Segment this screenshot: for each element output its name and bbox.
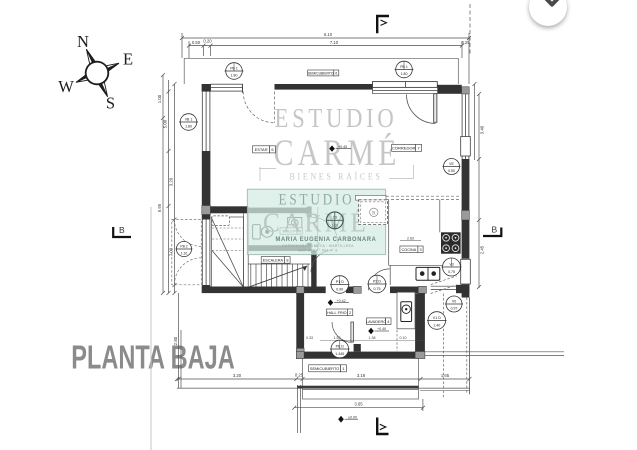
- svg-text:E: E: [123, 50, 133, 69]
- svg-text:HALL FRIO: HALL FRIO: [327, 311, 347, 315]
- svg-text:0.10: 0.10: [400, 336, 407, 340]
- svg-text:PB 1: PB 1: [230, 66, 238, 70]
- svg-text:1.00: 1.00: [157, 94, 162, 103]
- svg-text:0.75: 0.75: [448, 270, 455, 274]
- svg-text:PB 2: PB 2: [180, 244, 187, 248]
- svg-text:1.80: 1.80: [185, 125, 192, 129]
- svg-text:1.40: 1.40: [433, 323, 440, 327]
- svg-text:V0: V0: [452, 299, 456, 303]
- svg-text:0.05: 0.05: [416, 336, 423, 340]
- svg-text:1.80: 1.80: [401, 72, 408, 76]
- svg-text:VB 1: VB 1: [185, 117, 193, 121]
- svg-text:CARMÉ: CARMÉ: [274, 132, 401, 173]
- svg-text:0.33: 0.33: [306, 336, 313, 340]
- svg-text:3.18: 3.18: [357, 373, 366, 378]
- svg-text:ESTUDIO: ESTUDIO: [275, 102, 398, 133]
- svg-text:1: 1: [342, 366, 344, 371]
- svg-text:B: B: [492, 225, 498, 235]
- svg-text:P2 D: P2 D: [373, 279, 381, 283]
- svg-text:V1 D: V1 D: [433, 316, 441, 320]
- svg-text:CORREDOR: CORREDOR: [392, 146, 415, 151]
- svg-text:B: B: [119, 225, 125, 235]
- svg-text:3.20: 3.20: [233, 373, 242, 378]
- svg-text:ESTAR: ESTAR: [255, 147, 268, 152]
- svg-text:MARIA EUGENIA CARBONARA: MARIA EUGENIA CARBONARA: [276, 237, 377, 243]
- svg-text:6.10: 6.10: [324, 32, 333, 37]
- svg-text:1.38: 1.38: [369, 336, 376, 340]
- svg-text:0.97: 0.97: [451, 307, 458, 311]
- svg-text:ESCALERA: ESCALERA: [263, 259, 284, 263]
- svg-text:1.65: 1.65: [441, 373, 450, 378]
- svg-text:1.5: 1.5: [333, 216, 338, 220]
- svg-text:0.20: 0.20: [203, 39, 212, 44]
- svg-text:0.50: 0.50: [448, 169, 455, 173]
- svg-text:MAT. 605 F° 904 T° 6: MAT. 605 F° 904 T° 6: [298, 248, 337, 252]
- svg-text:0.90: 0.90: [336, 287, 343, 291]
- svg-text:4: 4: [387, 320, 389, 324]
- svg-text:5.95: 5.95: [157, 203, 162, 212]
- svg-text:V3: V3: [449, 262, 453, 266]
- svg-text:ESTUDIO: ESTUDIO: [279, 192, 355, 209]
- svg-text:7.00: 7.00: [169, 247, 174, 256]
- svg-text:5.00: 5.00: [163, 119, 168, 128]
- svg-text:3.40: 3.40: [480, 125, 485, 134]
- svg-text:S: S: [106, 94, 115, 113]
- svg-text:1.80: 1.80: [231, 74, 238, 78]
- svg-text:SEMICUBIERTO: SEMICUBIERTO: [308, 71, 334, 75]
- svg-text:SEMICUBIERTO: SEMICUBIERTO: [310, 366, 339, 371]
- svg-text:0.25: 0.25: [461, 40, 470, 45]
- svg-text:R: R: [372, 210, 376, 216]
- svg-text:COCINA: COCINA: [402, 248, 417, 252]
- svg-text:8: 8: [286, 259, 288, 263]
- svg-text:6: 6: [335, 71, 337, 75]
- svg-text:CARMÉ: CARMÉ: [263, 208, 369, 238]
- svg-text:N: N: [77, 32, 89, 51]
- svg-text:1.445: 1.445: [335, 352, 344, 356]
- svg-text:P1 D: P1 D: [336, 280, 344, 284]
- svg-text:2.83: 2.83: [407, 236, 414, 240]
- svg-text:3.65: 3.65: [354, 402, 363, 407]
- svg-text:BIENES RAÍCES: BIENES RAÍCES: [290, 171, 383, 183]
- svg-text:7.10: 7.10: [330, 40, 339, 45]
- svg-text:VE: VE: [449, 162, 454, 166]
- svg-text:2.80: 2.80: [173, 336, 178, 345]
- svg-text:2.45: 2.45: [480, 245, 485, 254]
- svg-text:W: W: [58, 77, 74, 96]
- svg-text:0.50: 0.50: [192, 40, 201, 45]
- svg-text:2: 2: [349, 311, 351, 315]
- svg-text:3: 3: [419, 248, 421, 252]
- svg-text:3.20: 3.20: [169, 177, 174, 186]
- svg-text:+0.45: +0.45: [338, 145, 347, 149]
- svg-text:1.10: 1.10: [181, 251, 188, 255]
- svg-text:LAVADERO: LAVADERO: [366, 320, 386, 324]
- svg-text:PE D: PE D: [336, 344, 345, 348]
- svg-text:1.53: 1.53: [334, 336, 341, 340]
- svg-text:+0.40: +0.40: [377, 327, 386, 331]
- svg-text:0.75: 0.75: [374, 287, 381, 291]
- svg-text:PB 1: PB 1: [400, 65, 408, 69]
- svg-text:PLANTA BAJA: PLANTA BAJA: [71, 339, 235, 376]
- svg-text:1.10: 1.10: [332, 223, 338, 227]
- svg-text:+0.42: +0.42: [337, 299, 346, 303]
